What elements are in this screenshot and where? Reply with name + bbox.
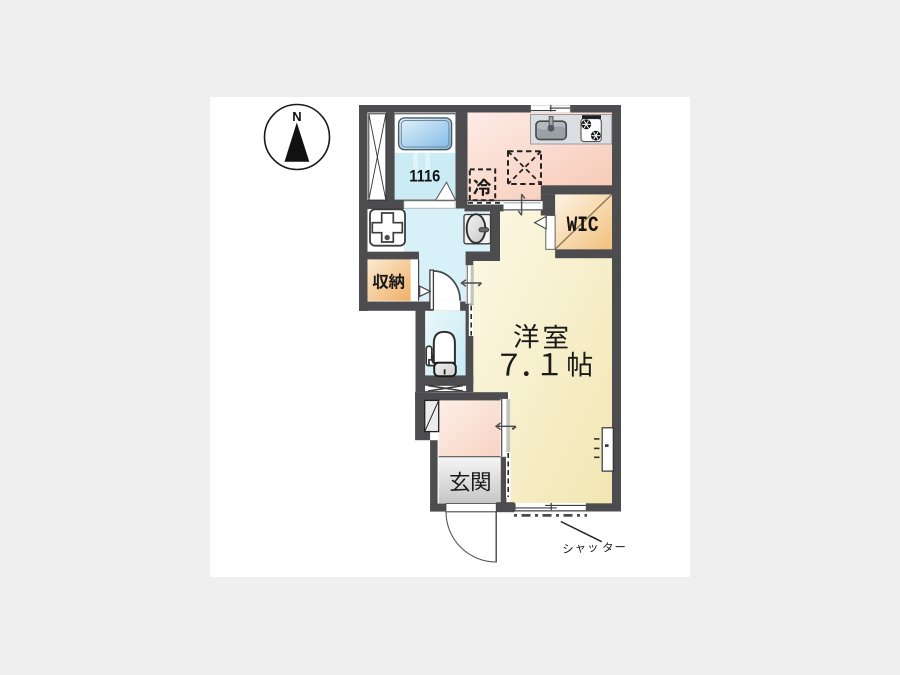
svg-text:N: N bbox=[292, 109, 301, 124]
svg-text:1116: 1116 bbox=[409, 167, 440, 186]
svg-text:WIC: WIC bbox=[567, 213, 599, 238]
